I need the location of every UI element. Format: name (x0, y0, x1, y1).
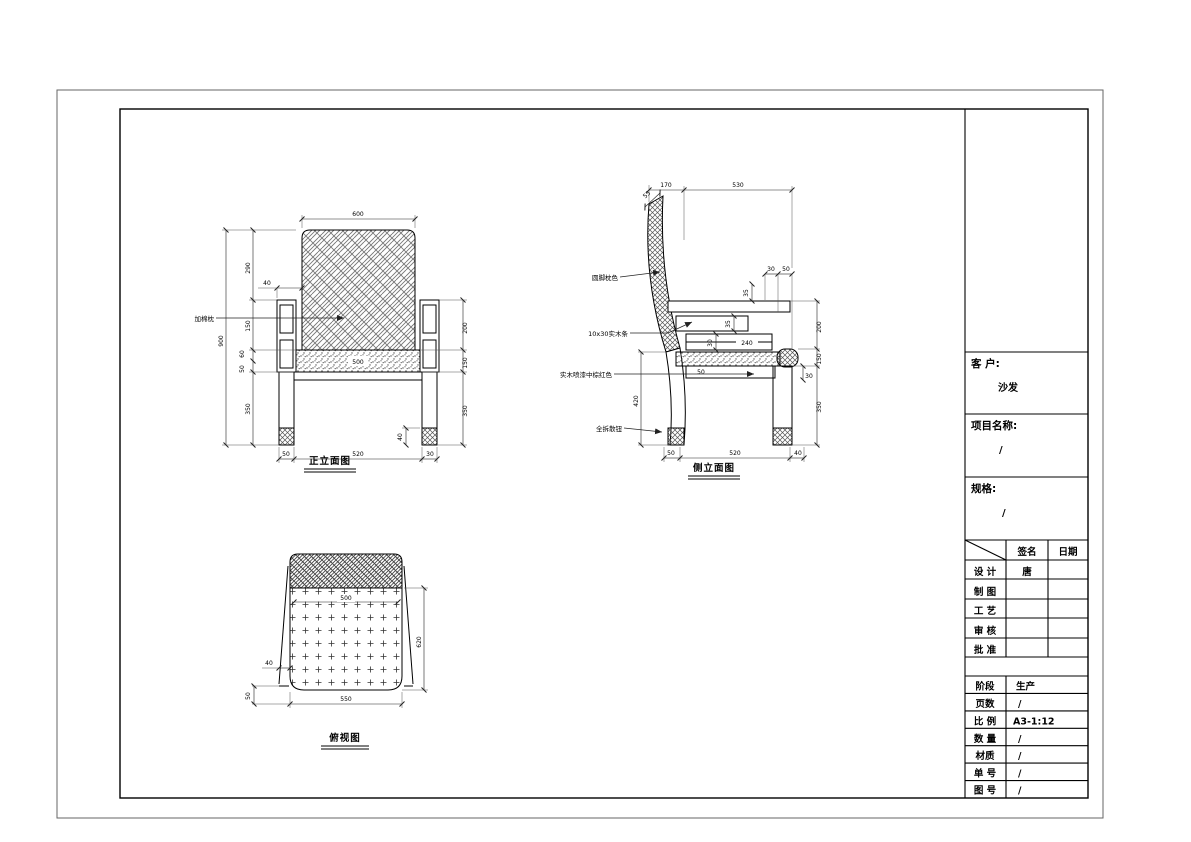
side-view: 240 50 170 530 55 30 50 35 35 30 (560, 182, 823, 479)
sign-row-label: 设 计 (974, 566, 997, 578)
side-armrest (668, 301, 790, 312)
dim-side-arm-rail: 35 (743, 289, 750, 297)
sign-row-label: 制 图 (974, 586, 996, 598)
dim-side-frame-a: 35 (725, 320, 732, 328)
dim-front-seat-rail: 50 (239, 365, 246, 373)
side-front-foot (773, 428, 792, 445)
dim-front-seat-width: 500 (352, 359, 364, 366)
dim-side-top-seat: 530 (732, 182, 744, 189)
dim-front-top-width: 600 (352, 211, 364, 218)
customer-value: 沙发 (998, 381, 1019, 394)
sign-row-label: 工 艺 (974, 605, 997, 617)
dim-top-arm-width: 40 (265, 660, 273, 667)
front-left-foot (279, 428, 294, 445)
info-row-value: / (1018, 786, 1022, 797)
side-seat-cushion (676, 352, 780, 366)
dim-front-arm-height-right: 200 (462, 322, 469, 334)
front-view-title: 正立面图 (309, 455, 351, 467)
sign-row-value: 唐 (1022, 566, 1032, 578)
dim-front-foot-height: 40 (397, 433, 404, 441)
info-row-value: / (1018, 751, 1022, 762)
top-left-arm-edge (279, 566, 288, 684)
dim-front-bottom-center: 520 (352, 451, 364, 458)
dim-side-seat-to-floor: 420 (633, 395, 640, 407)
side-frame-rail-a (676, 316, 748, 331)
front-right-foot (422, 428, 437, 445)
sheet-frame (57, 90, 1103, 818)
dim-front-bottom-right: 30 (426, 451, 434, 458)
dim-side-arm-height: 200 (816, 321, 823, 333)
info-row-label: 数 量 (973, 733, 997, 745)
info-row-value: A3-1:12 (1013, 716, 1055, 727)
label-side-hardware: 全拆散钮 (596, 424, 623, 433)
label-side-back-cushion: 圆脚枕色 (592, 273, 619, 282)
top-backrest-band (290, 554, 402, 588)
dim-top-bottom-width: 550 (340, 696, 352, 703)
dim-front-bottom-left: 50 (282, 451, 290, 458)
customer-label: 客 户: (970, 357, 1000, 370)
side-back-cushion (648, 196, 680, 352)
info-row-label: 比 例 (974, 715, 996, 727)
dim-side-seat-section: 150 (816, 353, 823, 365)
info-row-label: 单 号 (974, 768, 997, 780)
dim-front-arm-to-seat: 150 (245, 320, 252, 332)
sign-row-label: 批 准 (974, 644, 997, 656)
dim-front-arm-offset: 40 (263, 280, 271, 287)
date-col-header: 日期 (1058, 546, 1077, 558)
inner-border (120, 109, 1088, 798)
dim-side-bottom-left: 50 (667, 450, 675, 457)
top-view-title: 俯视图 (329, 732, 361, 744)
dim-front-leg-right: 350 (462, 405, 469, 417)
info-row-label: 阶段 (975, 681, 995, 693)
dim-side-inner-width: 240 (741, 340, 753, 347)
top-seat (290, 588, 402, 690)
top-right-arm-edge (404, 566, 413, 684)
label-side-leg-finish: 实木喷漆中棕红色 (560, 370, 613, 379)
spec-label: 规格: (971, 482, 996, 495)
dim-side-top-back: 170 (660, 182, 672, 189)
info-row-value: / (1018, 699, 1022, 710)
info-row-label: 页数 (975, 698, 995, 710)
dim-front-back-height: 290 (245, 262, 252, 274)
dim-front-leg-height: 350 (245, 403, 252, 415)
sign-col-header: 签名 (1016, 546, 1036, 558)
drawing-sheet: 500 600 900 290 150 60 50 350 40 加棉枕 (0, 0, 1191, 842)
title-block: 客 户: 沙发 项目名称: / 规格: / 签名 日期 设 计 唐 制 图 工 … (965, 109, 1088, 798)
cad-canvas: 500 600 900 290 150 60 50 350 40 加棉枕 (0, 0, 1191, 842)
dim-side-apron: 50 (697, 369, 705, 376)
dim-side-gap-b: 50 (782, 266, 790, 273)
info-row-label: 材质 (974, 750, 995, 762)
label-front-back-cushion: 加棉枕 (195, 314, 215, 323)
top-view: 500 620 550 40 50 俯视图 (245, 554, 428, 749)
dim-front-overall-height: 900 (218, 335, 225, 347)
outer-border (57, 90, 1103, 818)
front-apron (294, 372, 422, 380)
dim-front-cushion: 60 (239, 350, 246, 358)
dim-side-bottom-center: 520 (729, 450, 741, 457)
dim-side-bottom-right: 40 (794, 450, 802, 457)
side-seat-rail-end (777, 349, 798, 367)
label-side-wood-strip: 10x30实木条 (588, 329, 628, 338)
info-row-value: / (1018, 734, 1022, 745)
dim-top-seat-depth: 620 (416, 636, 423, 648)
dim-front-seat-section-right: 150 (462, 357, 469, 369)
info-row-value: 生产 (1016, 681, 1036, 693)
side-back-foot (668, 428, 684, 445)
info-row-value: / (1018, 769, 1022, 780)
diagonal-header-cell (965, 540, 1006, 560)
spec-value: / (1002, 508, 1006, 519)
dim-top-edge-offset: 50 (245, 692, 252, 700)
sign-row-label: 审 核 (974, 625, 997, 637)
front-view: 500 600 900 290 150 60 50 350 40 加棉枕 (195, 211, 470, 472)
info-row-label: 图 号 (974, 786, 997, 797)
dim-side-gap-a: 30 (767, 266, 775, 273)
front-backrest (302, 230, 415, 350)
dim-side-leg-inset: 30 (805, 373, 813, 380)
dim-top-seat-width: 500 (340, 595, 352, 602)
project-value: / (999, 445, 1003, 456)
dim-side-back-thickness: 55 (642, 190, 652, 200)
dim-side-frame-b: 30 (707, 339, 714, 347)
dim-side-leg-height: 350 (816, 401, 823, 413)
side-view-title: 侧立面图 (693, 462, 735, 474)
project-label: 项目名称: (971, 419, 1017, 432)
